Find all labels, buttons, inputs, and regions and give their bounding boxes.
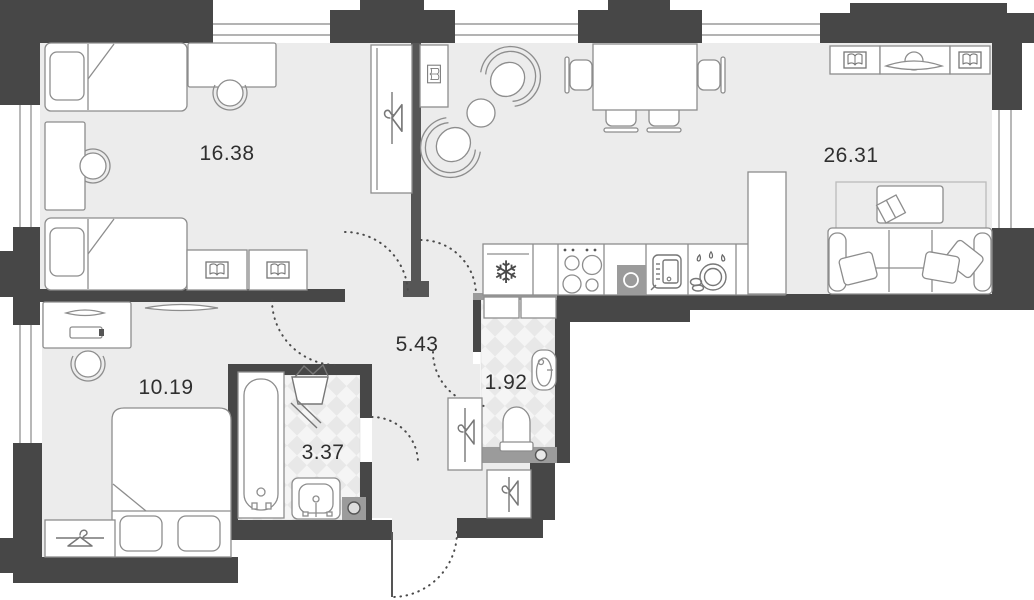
tv-console xyxy=(830,46,990,74)
open-book-icon xyxy=(267,262,289,278)
washbasin-icon xyxy=(532,350,556,390)
sofa-icon xyxy=(828,228,992,294)
door-swing-arc-entry xyxy=(392,532,457,597)
floor-plan-svg: ❄ xyxy=(0,0,1034,600)
floor-plan-page: ❄ xyxy=(0,0,1034,600)
dining-table-icon xyxy=(593,44,697,110)
tray-icon xyxy=(66,310,104,316)
bathtub-icon xyxy=(238,372,284,518)
pillow-icon xyxy=(178,516,220,551)
pillow-icon xyxy=(120,516,162,551)
window-left-lower xyxy=(13,325,40,443)
window-top-3 xyxy=(702,17,820,43)
wardrobe-icon xyxy=(487,470,531,518)
wardrobe-icon xyxy=(448,398,482,470)
side-table-icon xyxy=(467,99,495,127)
floor-bedroom-small-nook xyxy=(228,302,345,364)
room-label-hallway: 5.43 xyxy=(396,333,439,356)
laptop-icon xyxy=(70,327,102,338)
open-book-icon xyxy=(428,65,441,83)
bookcase-icon xyxy=(249,250,307,290)
open-book-icon xyxy=(844,52,866,68)
kitchen-sink-icon xyxy=(617,265,646,295)
room-label-bathroom: 3.37 xyxy=(302,441,345,464)
window-top-1 xyxy=(213,17,330,43)
room-label-toilet: 1.92 xyxy=(485,371,528,394)
bed-icon xyxy=(45,218,187,290)
room-label-bedroom-small: 10.19 xyxy=(138,376,193,399)
wardrobe-icon xyxy=(45,520,115,557)
toilet-icon xyxy=(500,407,533,451)
washing-machine-icon xyxy=(521,297,556,318)
window-top-2 xyxy=(455,17,578,43)
pillow-icon xyxy=(922,251,960,283)
window-left-upper xyxy=(13,105,40,227)
bookcase-icon xyxy=(187,250,247,290)
open-book-icon xyxy=(206,262,228,278)
snowflake-fridge-icon: ❄ xyxy=(493,255,519,291)
kitchen-peninsula xyxy=(748,172,786,294)
shelf-icon xyxy=(420,45,448,107)
vent-shaft-bathroom xyxy=(342,497,366,520)
wardrobe-icon xyxy=(371,45,412,193)
washbasin-icon xyxy=(292,478,340,519)
room-label-living-kitchen: 26.31 xyxy=(823,144,878,167)
open-book-icon xyxy=(959,52,981,68)
double-bed-icon xyxy=(112,408,231,557)
room-label-bedroom-large: 16.38 xyxy=(199,142,254,165)
window-right xyxy=(992,110,1022,228)
floor-entry-threshold xyxy=(392,518,457,540)
washing-machine-icon xyxy=(484,297,519,318)
bed-icon xyxy=(45,43,187,111)
